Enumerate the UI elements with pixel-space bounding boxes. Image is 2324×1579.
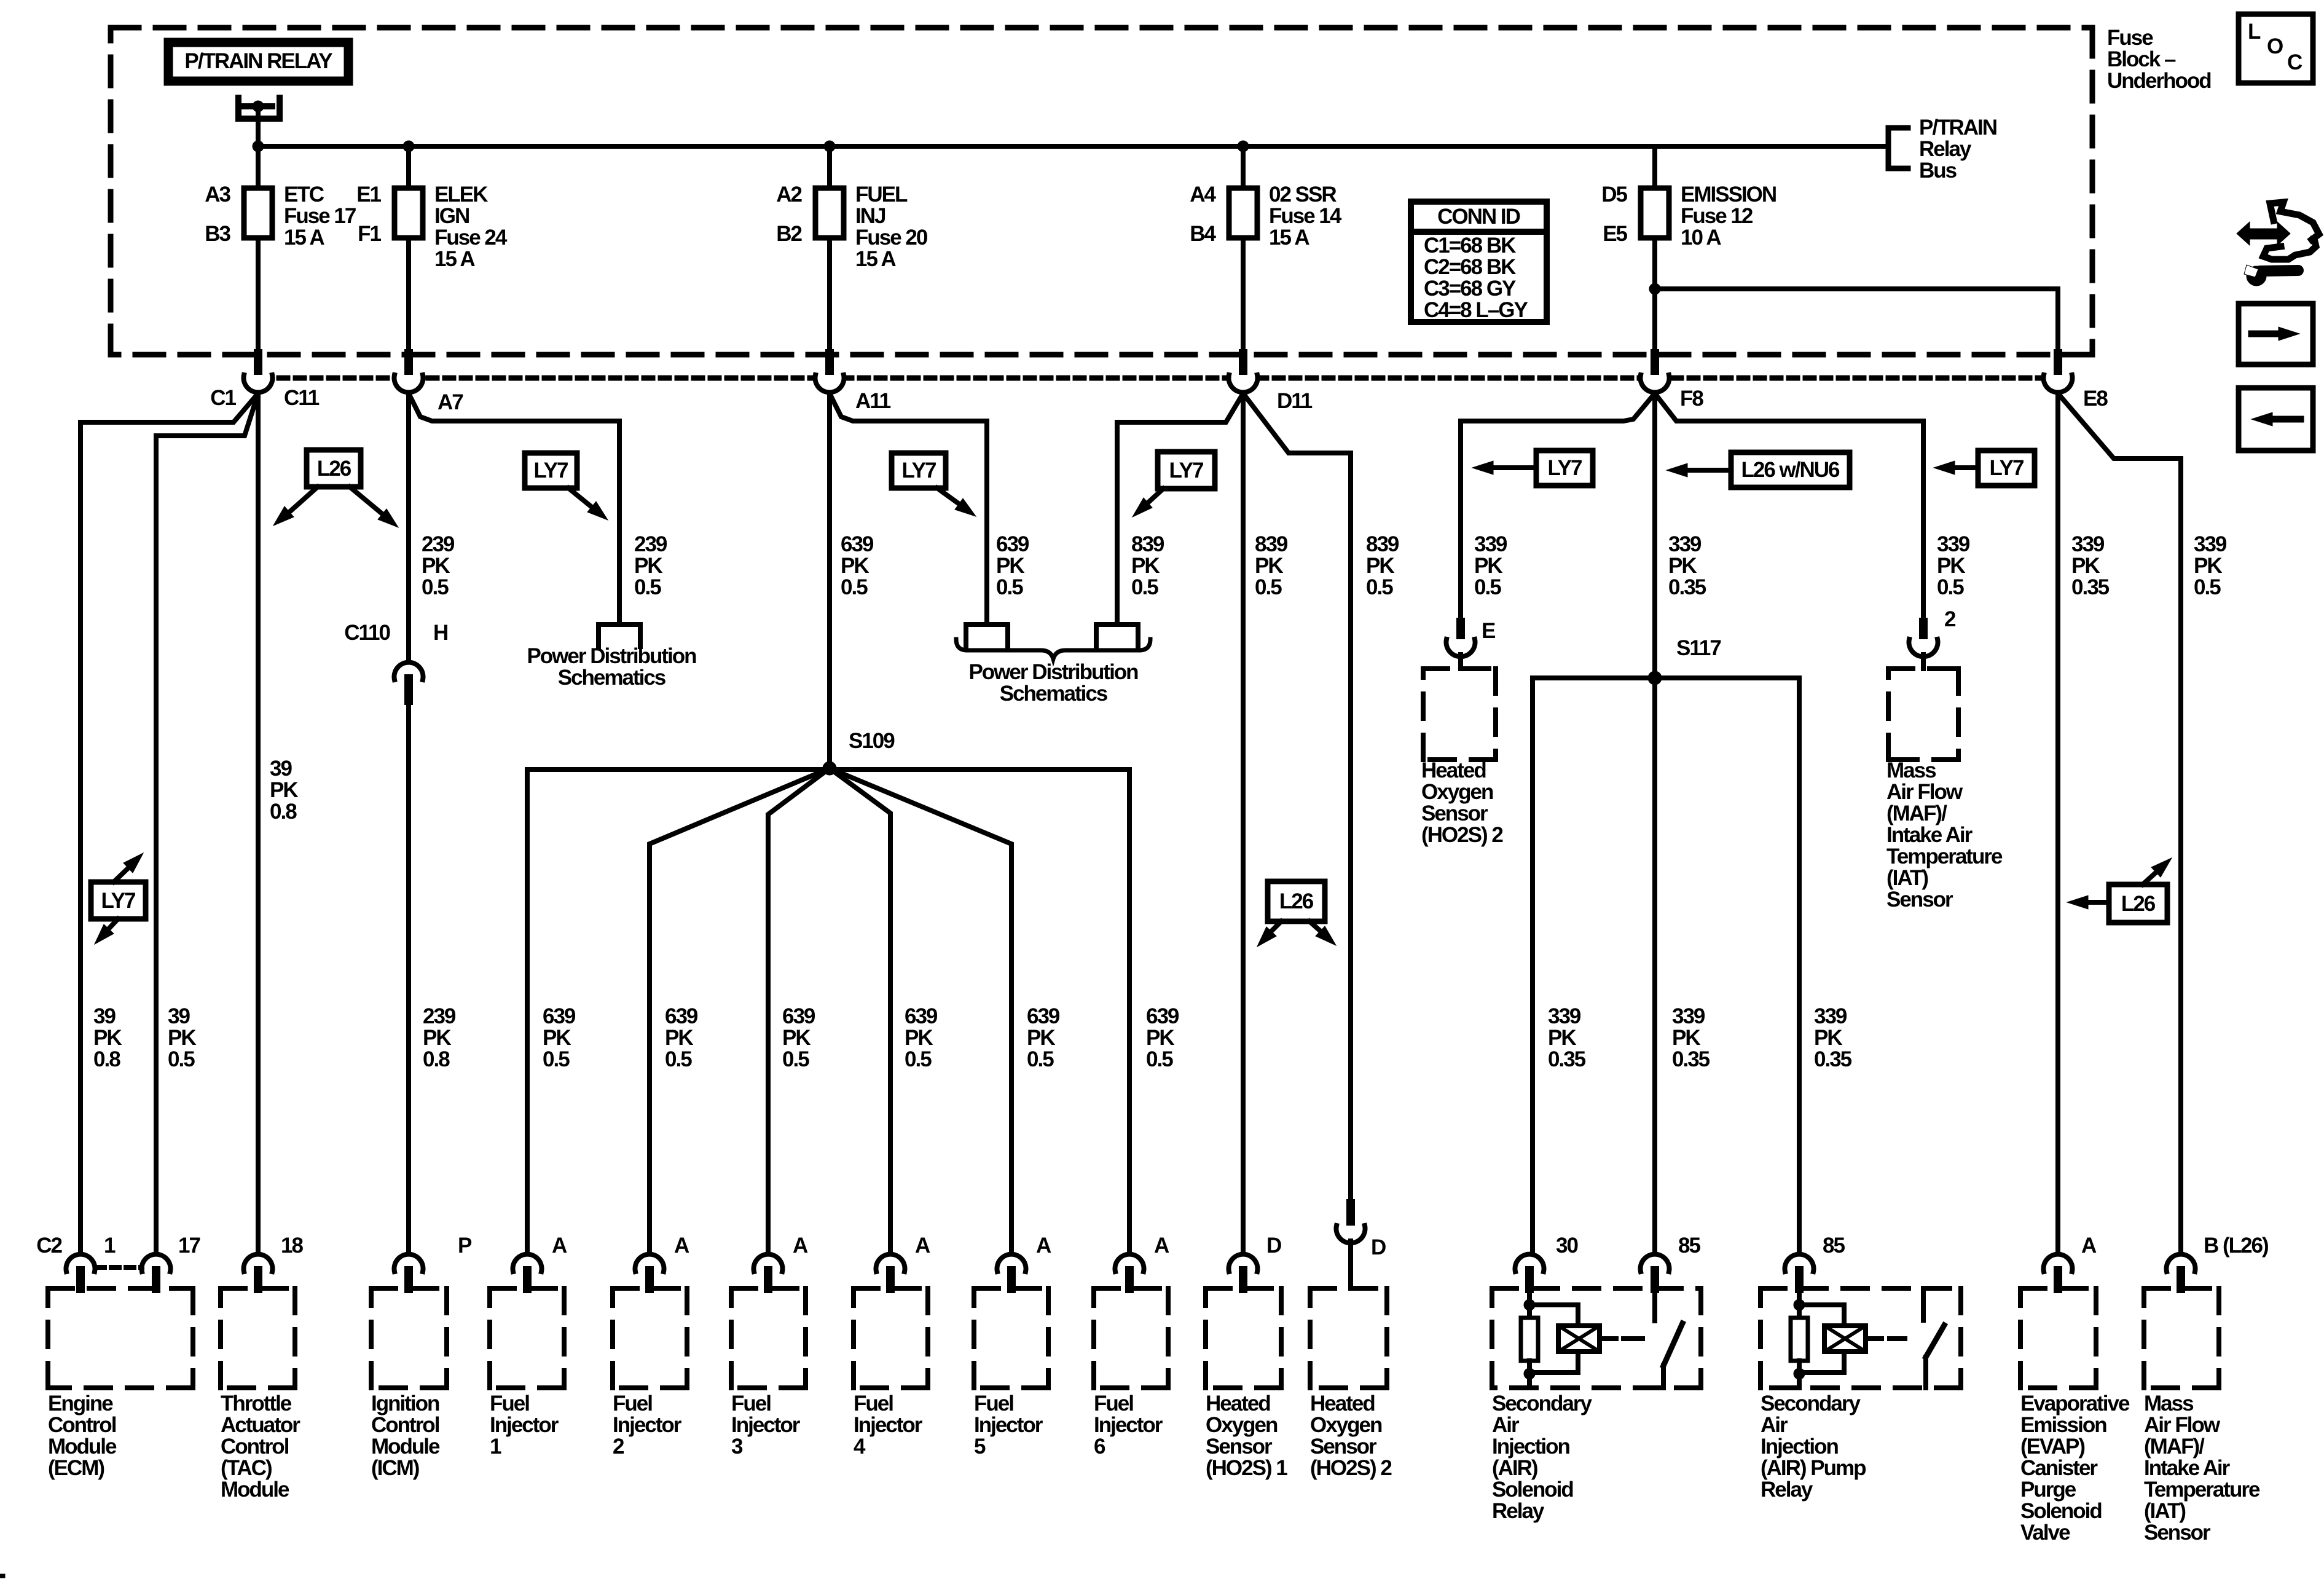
- svg-text:0.35: 0.35: [1814, 1047, 1852, 1071]
- svg-text:S117: S117: [1676, 636, 1721, 660]
- svg-text:0.35: 0.35: [1668, 575, 1706, 599]
- svg-text:Power Distribution: Power Distribution: [527, 644, 696, 668]
- svg-text:(IAT): (IAT): [2144, 1499, 2185, 1523]
- svg-text:A3: A3: [205, 183, 230, 207]
- svg-text:839: 839: [1255, 532, 1288, 556]
- svg-text:339: 339: [1937, 532, 1970, 556]
- svg-text:Secondary: Secondary: [1492, 1392, 1592, 1416]
- svg-text:(TAC): (TAC): [221, 1456, 272, 1480]
- svg-text:Fuse 20: Fuse 20: [855, 226, 928, 250]
- svg-text:Injector: Injector: [854, 1413, 923, 1437]
- svg-text:Injector: Injector: [1094, 1413, 1163, 1437]
- svg-text:Underhood: Underhood: [2107, 69, 2211, 93]
- svg-text:P/TRAIN RELAY: P/TRAIN RELAY: [184, 49, 332, 73]
- svg-text:839: 839: [1366, 532, 1399, 556]
- svg-text:0.5: 0.5: [1937, 575, 1964, 599]
- svg-text:IGN: IGN: [434, 204, 469, 228]
- svg-text:Valve: Valve: [2020, 1521, 2070, 1545]
- svg-text:Temperature: Temperature: [1886, 845, 2003, 868]
- svg-text:Control: Control: [48, 1413, 116, 1437]
- svg-text:Mass: Mass: [2144, 1392, 2194, 1416]
- svg-text:Injection: Injection: [1761, 1435, 1839, 1459]
- svg-text:PK: PK: [634, 554, 662, 578]
- svg-text:Injector: Injector: [613, 1413, 682, 1437]
- svg-text:PK: PK: [2194, 554, 2222, 578]
- svg-text:85: 85: [1678, 1234, 1700, 1258]
- svg-text:Fuse: Fuse: [2107, 26, 2153, 50]
- svg-text:5: 5: [974, 1435, 986, 1459]
- svg-text:Sensor: Sensor: [1421, 801, 1488, 825]
- svg-text:Actuator: Actuator: [221, 1413, 300, 1437]
- svg-text:639: 639: [782, 1004, 815, 1028]
- svg-text:Intake Air: Intake Air: [1886, 823, 1973, 847]
- svg-text:PK: PK: [1366, 554, 1394, 578]
- svg-text:0.5: 0.5: [2194, 575, 2221, 599]
- svg-text:339: 339: [1672, 1004, 1705, 1028]
- svg-text:15 A: 15 A: [1269, 226, 1309, 250]
- svg-text:(EVAP): (EVAP): [2020, 1435, 2084, 1459]
- svg-text:A: A: [674, 1234, 689, 1258]
- svg-text:H: H: [433, 621, 447, 645]
- svg-text:Mass: Mass: [1886, 758, 1936, 782]
- svg-text:PK: PK: [1146, 1026, 1174, 1050]
- svg-text:PK: PK: [1131, 554, 1160, 578]
- svg-text:Solenoid: Solenoid: [1492, 1478, 1573, 1502]
- svg-text:Module: Module: [48, 1435, 117, 1459]
- svg-text:3: 3: [731, 1435, 743, 1459]
- svg-text:(HO2S) 2: (HO2S) 2: [1421, 823, 1503, 847]
- svg-text:F1: F1: [358, 222, 381, 246]
- svg-text:639: 639: [905, 1004, 938, 1028]
- svg-text:639: 639: [665, 1004, 698, 1028]
- svg-text:ELEK: ELEK: [434, 183, 488, 207]
- svg-text:0.8: 0.8: [270, 800, 297, 824]
- svg-text:A: A: [915, 1234, 930, 1258]
- svg-text:Heated: Heated: [1310, 1392, 1375, 1416]
- svg-text:PK: PK: [93, 1026, 122, 1050]
- svg-text:639: 639: [1027, 1004, 1060, 1028]
- svg-text:0.5: 0.5: [1131, 575, 1158, 599]
- svg-text:A: A: [2081, 1234, 2097, 1258]
- svg-text:PK: PK: [168, 1026, 196, 1050]
- svg-text:A11: A11: [855, 389, 891, 413]
- svg-text:D5: D5: [1601, 183, 1627, 207]
- svg-text:Air: Air: [1492, 1413, 1520, 1437]
- svg-text:ETC: ETC: [284, 183, 324, 207]
- svg-text:A: A: [793, 1234, 808, 1258]
- svg-text:E5: E5: [1603, 222, 1627, 246]
- svg-text:Fuel: Fuel: [974, 1392, 1013, 1416]
- svg-text:(ICM): (ICM): [371, 1456, 419, 1480]
- svg-text:Canister: Canister: [2020, 1456, 2098, 1480]
- svg-text:6: 6: [1094, 1435, 1105, 1459]
- svg-text:Bus: Bus: [1919, 159, 1957, 183]
- svg-text:PK: PK: [905, 1026, 933, 1050]
- svg-text:Secondary: Secondary: [1761, 1392, 1861, 1416]
- svg-text:0.5: 0.5: [782, 1047, 809, 1071]
- svg-text:1: 1: [490, 1435, 501, 1459]
- svg-text:Fuel: Fuel: [854, 1392, 893, 1416]
- svg-text:339: 339: [1668, 532, 1702, 556]
- svg-text:639: 639: [996, 532, 1029, 556]
- svg-text:Fuel: Fuel: [613, 1392, 652, 1416]
- svg-text:15 A: 15 A: [434, 247, 475, 271]
- svg-text:Schematics: Schematics: [1000, 682, 1108, 706]
- svg-text:Emission: Emission: [2020, 1413, 2106, 1437]
- svg-text:Heated: Heated: [1421, 758, 1486, 782]
- svg-text:A7: A7: [438, 390, 463, 414]
- svg-text:15 A: 15 A: [284, 226, 324, 250]
- svg-text:0.5: 0.5: [841, 575, 868, 599]
- svg-text:239: 239: [422, 532, 455, 556]
- svg-text:Fuse 17: Fuse 17: [284, 204, 356, 228]
- svg-text:E1: E1: [356, 183, 381, 207]
- svg-text:B (L26): B (L26): [2204, 1234, 2268, 1258]
- svg-text:Temperature: Temperature: [2144, 1478, 2260, 1502]
- svg-text:PK: PK: [1937, 554, 1965, 578]
- svg-text:Relay: Relay: [1761, 1478, 1813, 1502]
- svg-text:639: 639: [841, 532, 874, 556]
- svg-text:Air Flow: Air Flow: [1886, 780, 1963, 804]
- svg-text:2: 2: [1944, 607, 1956, 631]
- svg-text:0.35: 0.35: [1672, 1047, 1710, 1071]
- svg-text:Module: Module: [371, 1435, 440, 1459]
- svg-text:339: 339: [1548, 1004, 1581, 1028]
- svg-text:A: A: [1154, 1234, 1169, 1258]
- svg-text:0.5: 0.5: [996, 575, 1023, 599]
- svg-text:(MAF)/: (MAF)/: [1886, 801, 1947, 825]
- svg-text:B4: B4: [1190, 222, 1216, 246]
- svg-text:D: D: [1266, 1234, 1281, 1258]
- svg-text:Fuse 12: Fuse 12: [1681, 204, 1753, 228]
- svg-text:C11: C11: [284, 386, 320, 410]
- svg-text:39: 39: [270, 757, 292, 781]
- svg-text:Purge: Purge: [2020, 1478, 2076, 1502]
- svg-text:LY7: LY7: [902, 459, 936, 482]
- svg-text:Heated: Heated: [1206, 1392, 1270, 1416]
- svg-text:Air Flow: Air Flow: [2144, 1413, 2221, 1437]
- svg-text:Injector: Injector: [974, 1413, 1043, 1437]
- svg-text:Oxygen: Oxygen: [1421, 780, 1493, 804]
- svg-text:639: 639: [543, 1004, 576, 1028]
- svg-text:85: 85: [1823, 1234, 1845, 1258]
- svg-text:D11: D11: [1277, 389, 1313, 413]
- svg-text:PK: PK: [1255, 554, 1283, 578]
- svg-text:(MAF)/: (MAF)/: [2144, 1435, 2205, 1459]
- svg-text:B3: B3: [205, 222, 230, 246]
- svg-text:(AIR) Pump: (AIR) Pump: [1761, 1456, 1866, 1480]
- svg-text:0.8: 0.8: [93, 1047, 120, 1071]
- svg-text:PK: PK: [1814, 1026, 1842, 1050]
- svg-text:839: 839: [1131, 532, 1164, 556]
- svg-text:PK: PK: [270, 778, 298, 802]
- svg-text:PK: PK: [1672, 1026, 1700, 1050]
- svg-text:0.5: 0.5: [1255, 575, 1282, 599]
- svg-text:0.8: 0.8: [423, 1047, 450, 1071]
- svg-text:PK: PK: [423, 1026, 451, 1050]
- svg-text:PK: PK: [422, 554, 450, 578]
- svg-text:0.5: 0.5: [665, 1047, 692, 1071]
- svg-text:CONN ID: CONN ID: [1437, 205, 1520, 229]
- svg-text:(HO2S) 2: (HO2S) 2: [1310, 1456, 1392, 1480]
- svg-text:Power Distribution: Power Distribution: [968, 660, 1138, 684]
- svg-text:Intake Air: Intake Air: [2144, 1456, 2231, 1480]
- svg-text:4: 4: [854, 1435, 866, 1459]
- svg-text:0.5: 0.5: [1474, 575, 1501, 599]
- svg-text:Air: Air: [1761, 1413, 1788, 1437]
- svg-text:239: 239: [634, 532, 667, 556]
- svg-text:30: 30: [1556, 1234, 1578, 1258]
- svg-text:C2=68 BK: C2=68 BK: [1424, 255, 1516, 279]
- svg-text:0.35: 0.35: [1548, 1047, 1586, 1071]
- svg-text:Oxygen: Oxygen: [1206, 1413, 1278, 1437]
- svg-text:LY7: LY7: [1548, 456, 1582, 480]
- svg-text:PK: PK: [782, 1026, 811, 1050]
- svg-text:F8: F8: [1680, 387, 1703, 411]
- svg-text:A: A: [552, 1234, 567, 1258]
- svg-text:PK: PK: [841, 554, 869, 578]
- svg-text:0.5: 0.5: [1027, 1047, 1054, 1071]
- svg-text:C4=8 L–GY: C4=8 L–GY: [1424, 298, 1528, 322]
- svg-text:17: 17: [178, 1234, 200, 1258]
- svg-text:0.5: 0.5: [1366, 575, 1393, 599]
- svg-text:Sensor: Sensor: [2144, 1521, 2211, 1545]
- svg-text:Oxygen: Oxygen: [1310, 1413, 1382, 1437]
- svg-text:0.5: 0.5: [168, 1047, 195, 1071]
- svg-text:39: 39: [168, 1004, 190, 1028]
- svg-text:02 SSR: 02 SSR: [1269, 183, 1337, 207]
- svg-text:Fuel: Fuel: [731, 1392, 771, 1416]
- svg-text:Injector: Injector: [490, 1413, 559, 1437]
- svg-text:PK: PK: [2071, 554, 2100, 578]
- svg-text:P/TRAIN: P/TRAIN: [1919, 116, 1996, 140]
- svg-text:E: E: [1482, 619, 1495, 643]
- svg-text:0.5: 0.5: [543, 1047, 570, 1071]
- svg-text:Evaporative: Evaporative: [2020, 1392, 2130, 1416]
- svg-text:Relay: Relay: [1492, 1499, 1545, 1523]
- svg-text:B2: B2: [776, 222, 802, 246]
- svg-text:Sensor: Sensor: [1206, 1435, 1273, 1459]
- svg-text:Schematics: Schematics: [558, 666, 666, 690]
- svg-text:INJ: INJ: [855, 204, 885, 228]
- svg-text:D: D: [1371, 1235, 1386, 1259]
- svg-text:(HO2S) 1: (HO2S) 1: [1206, 1456, 1287, 1480]
- svg-text:A: A: [1036, 1234, 1051, 1258]
- svg-text:Fuse 14: Fuse 14: [1269, 204, 1342, 228]
- svg-text:0.5: 0.5: [905, 1047, 932, 1071]
- svg-text:PK: PK: [665, 1026, 693, 1050]
- svg-text:15 A: 15 A: [855, 247, 896, 271]
- svg-text:C1=68 BK: C1=68 BK: [1424, 234, 1516, 258]
- svg-text:0.5: 0.5: [1146, 1047, 1173, 1071]
- svg-text:LY7: LY7: [101, 889, 136, 913]
- svg-text:P: P: [458, 1234, 472, 1258]
- svg-text:339: 339: [1814, 1004, 1847, 1028]
- svg-text:PK: PK: [1474, 554, 1502, 578]
- svg-text:Relay: Relay: [1919, 137, 1972, 161]
- svg-text:Fuse 24: Fuse 24: [434, 226, 508, 250]
- svg-text:Module: Module: [221, 1478, 289, 1502]
- svg-text:Sensor: Sensor: [1310, 1435, 1377, 1459]
- svg-text:Block –: Block –: [2107, 47, 2176, 71]
- svg-text:Sensor: Sensor: [1886, 888, 1953, 912]
- svg-text:PK: PK: [1548, 1026, 1576, 1050]
- svg-text:Fuel: Fuel: [490, 1392, 529, 1416]
- svg-text:A2: A2: [776, 183, 802, 207]
- svg-text:EMISSION: EMISSION: [1681, 183, 1776, 207]
- svg-text:A4: A4: [1190, 183, 1216, 207]
- svg-text:O: O: [2267, 34, 2283, 58]
- svg-text:PK: PK: [543, 1026, 571, 1050]
- svg-text:C110: C110: [344, 621, 390, 645]
- svg-text:339: 339: [1474, 532, 1507, 556]
- svg-text:Throttle: Throttle: [221, 1392, 292, 1416]
- svg-text:L26: L26: [2121, 892, 2156, 916]
- svg-text:E8: E8: [2083, 387, 2108, 411]
- svg-text:0.5: 0.5: [634, 575, 661, 599]
- svg-text:PK: PK: [1027, 1026, 1055, 1050]
- svg-text:18: 18: [281, 1234, 303, 1258]
- svg-text:PK: PK: [1668, 554, 1697, 578]
- svg-text:C2: C2: [36, 1234, 62, 1258]
- svg-text:Injector: Injector: [731, 1413, 801, 1437]
- svg-text:Solenoid: Solenoid: [2020, 1499, 2102, 1523]
- svg-text:339: 339: [2194, 532, 2227, 556]
- svg-text:L26 w/NU6: L26 w/NU6: [1741, 458, 1840, 482]
- svg-text:639: 639: [1146, 1004, 1179, 1028]
- svg-text:LY7: LY7: [534, 459, 568, 482]
- svg-text:C3=68 GY: C3=68 GY: [1424, 277, 1516, 301]
- svg-text:C1: C1: [210, 386, 236, 410]
- svg-text:FUEL: FUEL: [855, 183, 908, 207]
- svg-text:Control: Control: [221, 1435, 289, 1459]
- svg-text:Engine: Engine: [48, 1392, 113, 1416]
- svg-text:2: 2: [613, 1435, 624, 1459]
- svg-text:Control: Control: [371, 1413, 439, 1437]
- svg-text:Ignition: Ignition: [371, 1392, 439, 1416]
- svg-text:(AIR): (AIR): [1492, 1456, 1537, 1480]
- svg-text:(IAT): (IAT): [1886, 866, 1928, 890]
- svg-text:L: L: [2248, 20, 2261, 44]
- svg-text:L26: L26: [1279, 889, 1314, 913]
- svg-text:1: 1: [104, 1234, 116, 1258]
- svg-text:S109: S109: [849, 729, 895, 753]
- svg-text:LY7: LY7: [1169, 459, 1204, 482]
- svg-text:PK: PK: [996, 554, 1024, 578]
- svg-text:L26: L26: [317, 457, 351, 481]
- svg-text:10 A: 10 A: [1681, 226, 1721, 250]
- svg-text:LY7: LY7: [1990, 456, 2024, 480]
- svg-text:0.35: 0.35: [2071, 575, 2110, 599]
- svg-text:339: 339: [2071, 532, 2105, 556]
- svg-text:Fuel: Fuel: [1094, 1392, 1133, 1416]
- svg-text:239: 239: [423, 1004, 456, 1028]
- svg-text:Injection: Injection: [1492, 1435, 1570, 1459]
- svg-text:C: C: [2287, 50, 2302, 74]
- svg-text:0.5: 0.5: [422, 575, 449, 599]
- svg-text:39: 39: [93, 1004, 116, 1028]
- svg-text:(ECM): (ECM): [48, 1456, 104, 1480]
